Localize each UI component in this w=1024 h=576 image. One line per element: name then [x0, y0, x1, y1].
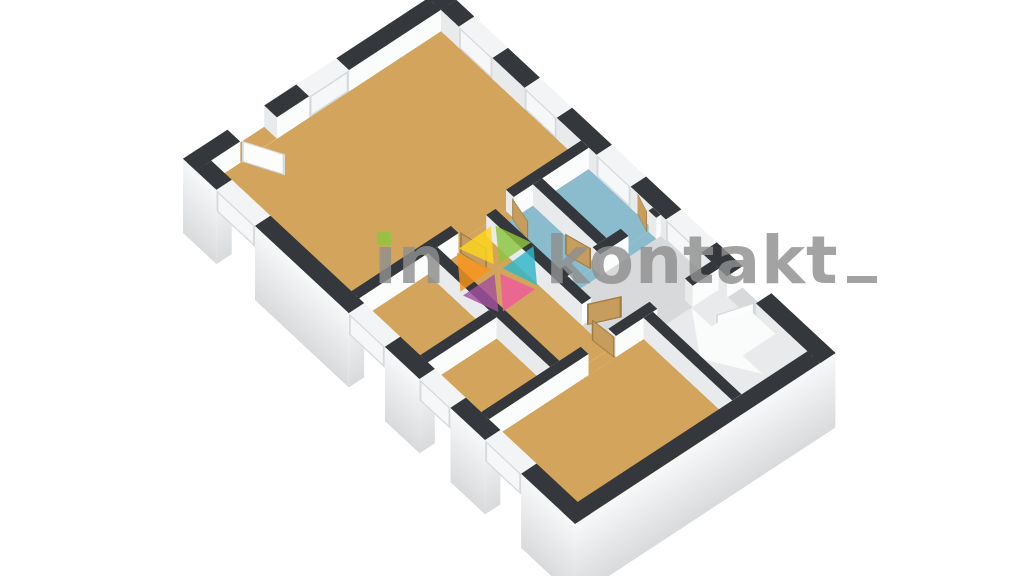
floorplan-3d-scene [183, 9, 836, 545]
exterior-wall-west-south-face [575, 514, 590, 576]
watermark-dash [847, 276, 877, 283]
interior-wall-south-face [656, 215, 661, 239]
floorplan-render: in kontakt [0, 0, 1024, 576]
